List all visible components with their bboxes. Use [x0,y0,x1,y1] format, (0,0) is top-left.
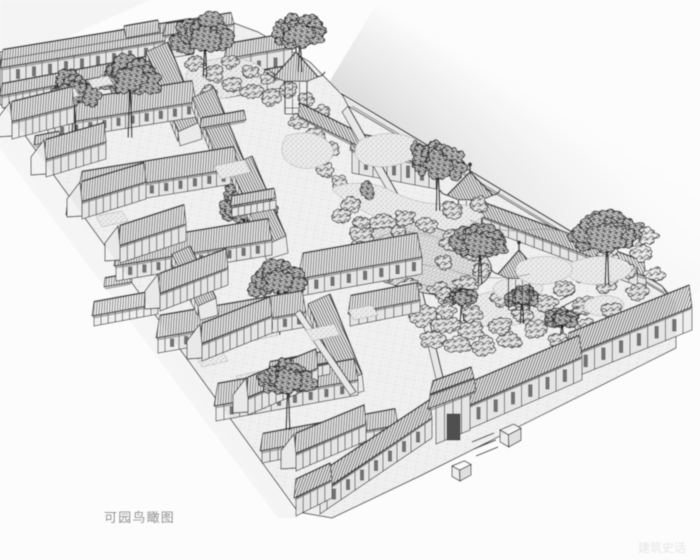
svg-text:建筑史话: 建筑史话 [638,540,686,555]
svg-text:可园鸟瞰图: 可园鸟瞰图 [104,510,175,525]
